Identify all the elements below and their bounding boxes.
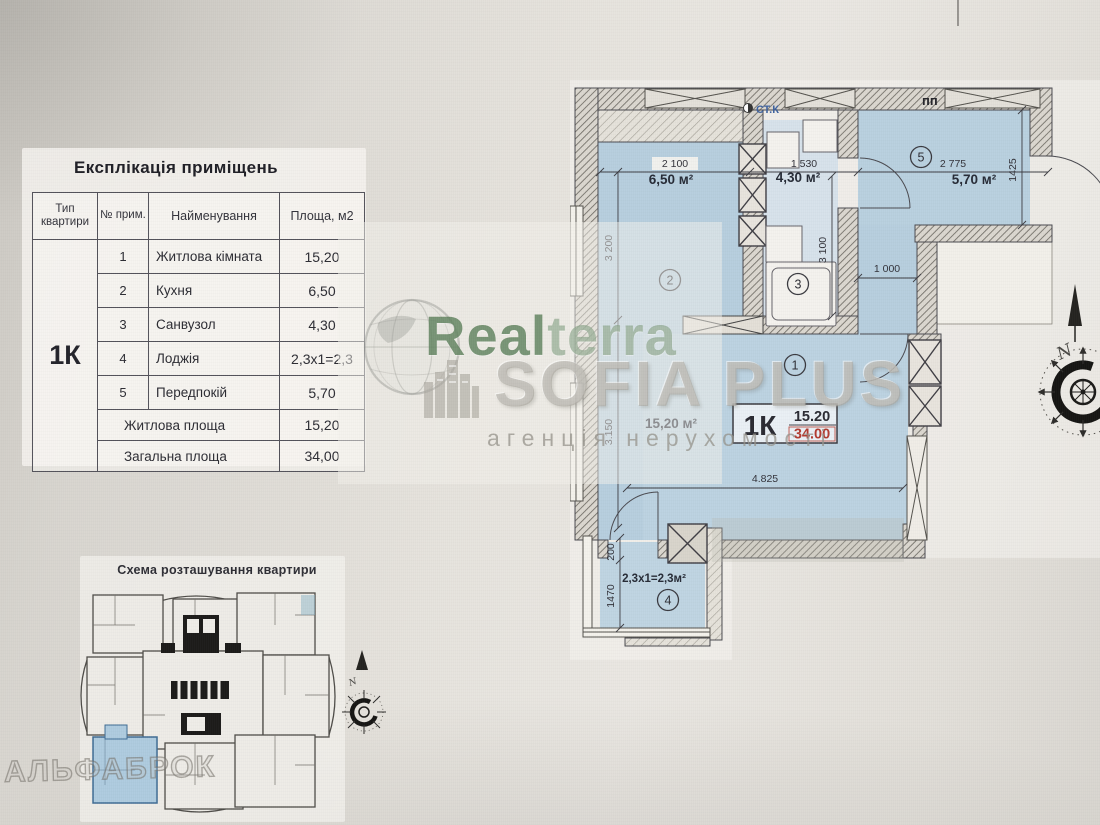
dim-wall: 200: [605, 543, 617, 561]
window-right: [907, 436, 927, 540]
cell-name: Кухня: [149, 274, 280, 308]
cell-area: 2,3х1=2,3: [280, 342, 365, 376]
col-header-area: Площа, м2: [280, 193, 365, 240]
room5-area-label: 5,70 м²: [952, 172, 997, 187]
cell-name: Лоджія: [149, 342, 280, 376]
dim-corridor: 1 000: [874, 263, 900, 275]
dim-top-hall: 2 775: [940, 158, 966, 170]
cell-area: 4,30: [280, 308, 365, 342]
room3-number: 3: [795, 278, 802, 292]
screen-edge-artifact: [957, 0, 959, 26]
explication-title: Експлікація приміщень: [36, 158, 316, 178]
dim-left-room: 3.150: [603, 419, 615, 445]
cell-name: Санвузол: [149, 308, 280, 342]
tag-type: 1К: [744, 410, 778, 441]
room1-number: 1: [792, 359, 799, 373]
realterra-part1: Real: [425, 304, 547, 367]
apartment-type-cell: 1К: [33, 240, 98, 472]
buildings-icon: [420, 352, 480, 422]
explication-table: Тип квартири № прим. Найменування Площа,…: [32, 192, 365, 472]
dim-loggia-depth: 1470: [605, 584, 617, 608]
globe-icon: [348, 293, 478, 403]
cell-num: 4: [98, 342, 149, 376]
stk-label: СТ.К: [756, 104, 779, 116]
cell-name: Передпокій: [149, 376, 280, 410]
dim-left-kitchen: 3 200: [603, 235, 615, 261]
pp-label: пп: [922, 93, 938, 108]
schema-compass: N: [332, 648, 402, 743]
north-letter: N: [1053, 340, 1077, 365]
table-row: 1К 1 Житлова кімната 15,20: [33, 240, 365, 274]
schema-title: Схема розташування квартири: [92, 563, 342, 577]
building-schema: [75, 585, 345, 825]
north-arrow: [1068, 284, 1082, 326]
room5-number: 5: [918, 151, 925, 165]
floor-plan: 2 100 1 530 2 775 3 200 3.150 3 100 1425…: [570, 80, 1100, 665]
tag-total-area: 34.00: [794, 427, 830, 443]
window-lintel-blocks: [645, 89, 1040, 108]
cell-name: Житлова кімната: [149, 240, 280, 274]
dim-top-kitchen: 2 100: [662, 158, 688, 170]
schema-highlighted-apartment: [93, 725, 157, 803]
cell-num: 2: [98, 274, 149, 308]
col-header-name: Найменування: [149, 193, 280, 240]
col-header-type: Тип квартири: [33, 193, 98, 240]
schema-accent: [301, 595, 315, 615]
summary-label: Загальна площа: [98, 441, 280, 472]
room1-area-label: 15,20 м²: [645, 416, 698, 431]
cell-area: 5,70: [280, 376, 365, 410]
summary-area: 34,00: [280, 441, 365, 472]
dim-hall-depth: 1425: [1007, 158, 1019, 182]
cell-area: 15,20: [280, 240, 365, 274]
room3-area-label: 4,30 м²: [776, 170, 821, 185]
dim-room-width: 4.825: [752, 473, 778, 485]
tag-living-area: 15.20: [794, 409, 830, 425]
summary-label: Житлова площа: [98, 410, 280, 441]
apartment-tag: 1К 15.20 34.00: [733, 404, 837, 443]
cell-area: 6,50: [280, 274, 365, 308]
cabinet: [766, 226, 802, 262]
stk-marker: [744, 104, 753, 113]
beam-block: [683, 316, 763, 334]
room2-area-label: 6,50 м²: [649, 172, 694, 187]
cell-num: 1: [98, 240, 149, 274]
table-header-row: Тип квартири № прим. Найменування Площа,…: [33, 193, 365, 240]
cell-num: 5: [98, 376, 149, 410]
dim-bath-height: 3 100: [817, 237, 829, 263]
north-arrow-small: [356, 650, 368, 670]
col-header-num: № прим.: [98, 193, 149, 240]
cell-num: 3: [98, 308, 149, 342]
room4-area-label: 2,3х1=2,3м²: [622, 573, 686, 585]
sink: [803, 120, 837, 152]
room4-number: 4: [665, 594, 672, 608]
room2-number: 2: [667, 274, 674, 288]
dim-top-bath: 1 530: [791, 158, 817, 170]
summary-area: 15,20: [280, 410, 365, 441]
screen-photo: Експлікація приміщень Тип квартири № при…: [0, 0, 1100, 825]
north-letter-small: N: [347, 676, 360, 689]
compass-rose: N: [1030, 280, 1100, 500]
loggia-shaft: [668, 524, 707, 563]
